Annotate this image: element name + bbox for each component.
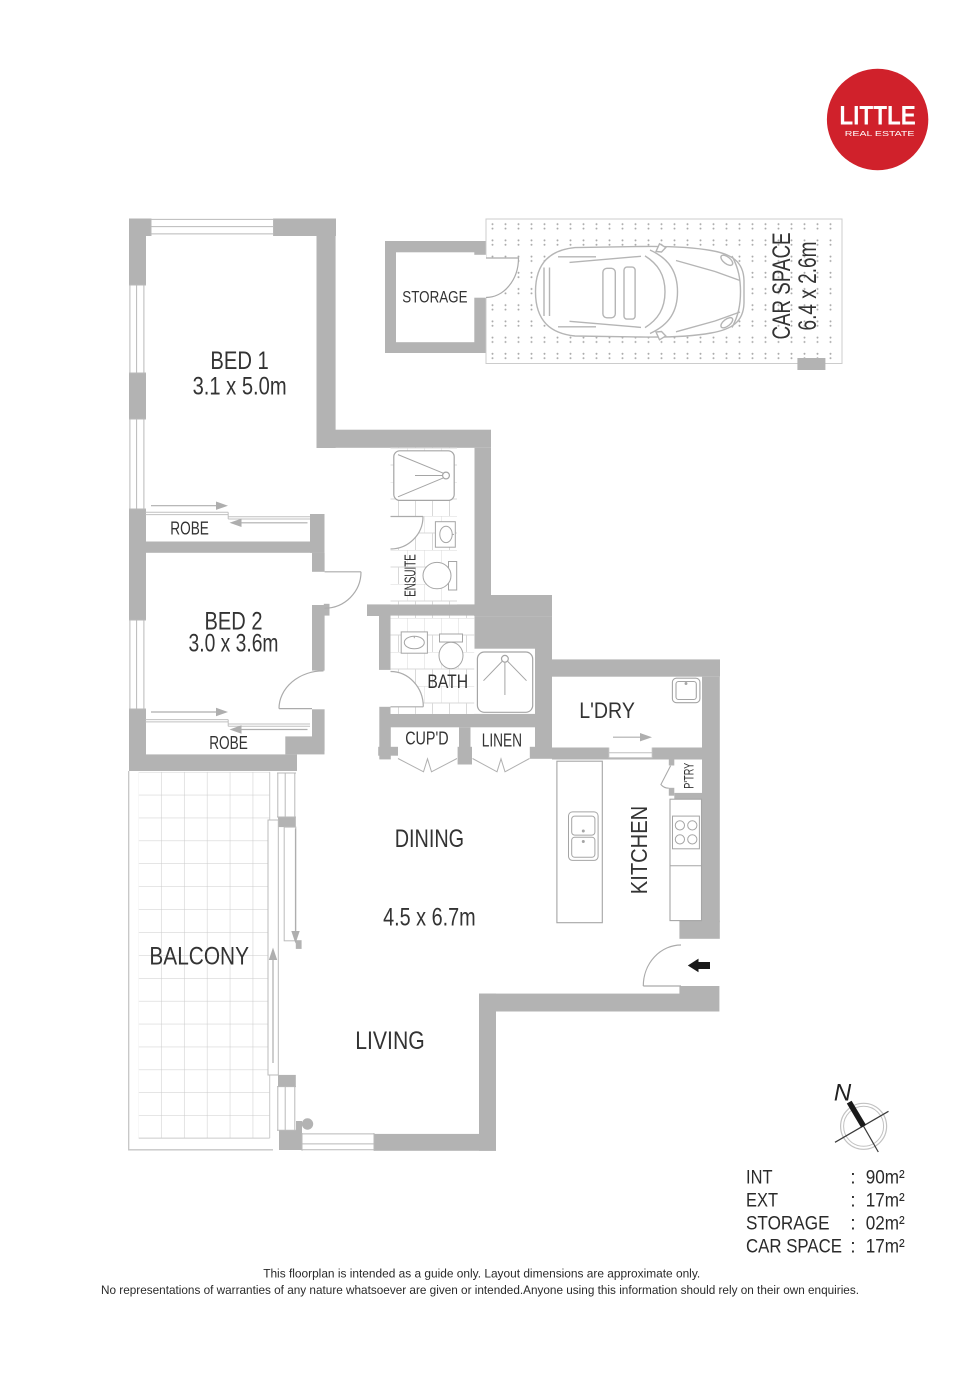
svg-text:17m²: 17m² xyxy=(866,1236,905,1258)
svg-text:N: N xyxy=(834,1080,852,1107)
svg-text:CUP'D: CUP'D xyxy=(405,729,448,749)
svg-text::: : xyxy=(850,1236,855,1258)
svg-text:LINEN: LINEN xyxy=(482,730,522,750)
svg-text:REAL ESTATE: REAL ESTATE xyxy=(845,129,915,138)
svg-text:LITTLE: LITTLE xyxy=(839,101,916,131)
svg-text::: : xyxy=(850,1190,855,1212)
svg-text:BATH: BATH xyxy=(427,672,468,693)
svg-text:This floorplan is intended as: This floorplan is intended as a guide on… xyxy=(263,1267,700,1281)
svg-text:INT: INT xyxy=(746,1167,773,1189)
svg-text::: : xyxy=(850,1167,855,1189)
svg-text:BALCONY: BALCONY xyxy=(149,943,249,971)
svg-text:17m²: 17m² xyxy=(866,1190,905,1212)
svg-text:LIVING: LIVING xyxy=(355,1027,425,1055)
svg-text:ROBE: ROBE xyxy=(170,518,209,538)
svg-text:KITCHEN: KITCHEN xyxy=(626,806,652,894)
svg-text:CAR SPACE: CAR SPACE xyxy=(768,233,796,340)
svg-text:6.4 x 2.6m: 6.4 x 2.6m xyxy=(794,242,822,331)
svg-text::: : xyxy=(850,1213,855,1235)
svg-text:CAR SPACE: CAR SPACE xyxy=(746,1236,842,1258)
svg-text:STORAGE: STORAGE xyxy=(746,1213,830,1235)
svg-text:3.1 x 5.0m: 3.1 x 5.0m xyxy=(193,373,287,401)
svg-text:4.5 x 6.7m: 4.5 x 6.7m xyxy=(383,904,476,932)
svg-text:90m²: 90m² xyxy=(866,1167,905,1189)
svg-text:L'DRY: L'DRY xyxy=(579,698,635,723)
svg-text:EXT: EXT xyxy=(746,1190,778,1212)
svg-text:ENSUITE: ENSUITE xyxy=(403,554,420,597)
svg-text:BED 1: BED 1 xyxy=(210,347,268,375)
svg-text:DINING: DINING xyxy=(395,825,464,853)
svg-text:ROBE: ROBE xyxy=(209,733,248,753)
svg-text:P'TRY: P'TRY xyxy=(681,762,697,788)
svg-text:3.0 x 3.6m: 3.0 x 3.6m xyxy=(189,630,279,658)
svg-text:02m²: 02m² xyxy=(866,1213,905,1235)
svg-text:STORAGE: STORAGE xyxy=(402,288,467,307)
svg-text:No representations of warranti: No representations of warranties of any … xyxy=(101,1283,859,1297)
